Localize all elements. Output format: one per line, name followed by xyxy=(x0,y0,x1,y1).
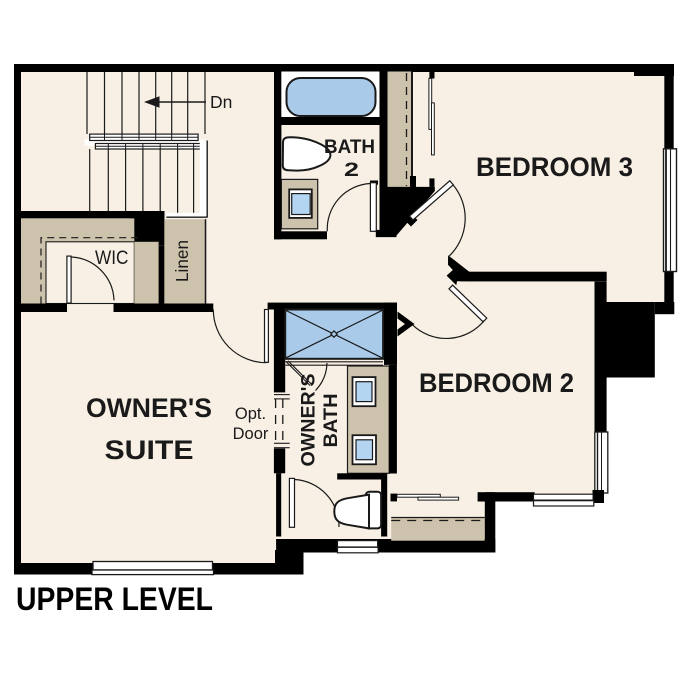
svg-text:BATH: BATH xyxy=(320,394,342,448)
svg-text:BEDROOM 3: BEDROOM 3 xyxy=(476,152,633,182)
svg-text:Opt.: Opt. xyxy=(235,405,266,423)
svg-text:BATH: BATH xyxy=(324,137,375,158)
svg-text:2: 2 xyxy=(344,160,359,181)
svg-text:Door: Door xyxy=(233,425,269,443)
svg-text:OWNER'S: OWNER'S xyxy=(86,393,212,423)
svg-text:BEDROOM 2: BEDROOM 2 xyxy=(419,368,574,398)
svg-text:UPPER LEVEL: UPPER LEVEL xyxy=(16,581,213,617)
svg-text:OWNER'S: OWNER'S xyxy=(298,374,320,467)
svg-text:SUITE: SUITE xyxy=(105,435,194,465)
svg-text:Dn: Dn xyxy=(210,92,232,112)
svg-text:Linen: Linen xyxy=(172,240,192,282)
svg-text:WIC: WIC xyxy=(95,248,129,269)
